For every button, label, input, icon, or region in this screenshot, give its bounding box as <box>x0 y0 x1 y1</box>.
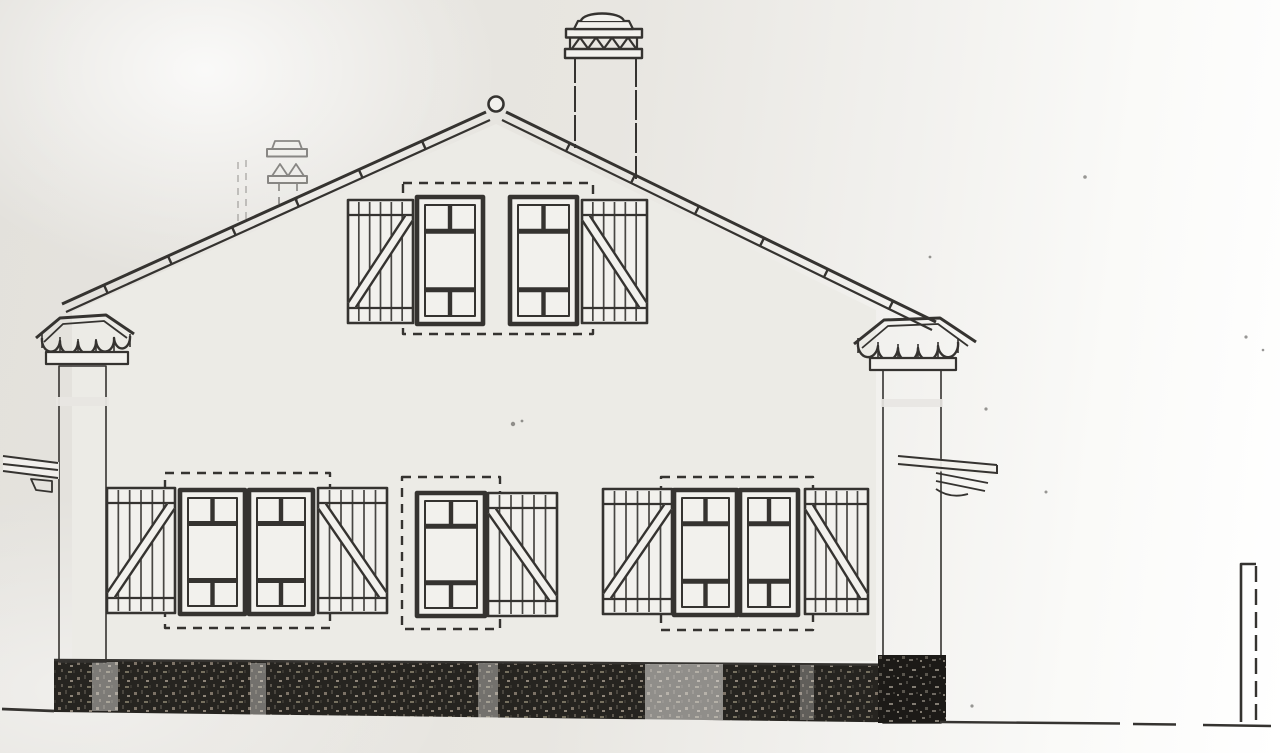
window-lower-middle <box>402 477 557 629</box>
window-leaf <box>510 197 577 324</box>
foundation <box>54 660 944 723</box>
shutter-right <box>582 200 647 323</box>
scanned-drawing-page <box>0 0 1280 753</box>
window-leaf <box>249 490 313 614</box>
secondary-chimney <box>238 141 307 224</box>
window-leaf <box>417 197 483 324</box>
shutter-right <box>318 488 387 613</box>
ridge-finial <box>489 97 504 112</box>
right-spout <box>898 455 997 496</box>
window-lower-right <box>603 477 868 630</box>
shutter-left <box>603 489 672 614</box>
shutter-left <box>107 488 175 613</box>
main-chimney <box>565 14 642 180</box>
fence-post <box>1241 564 1256 722</box>
window-leaf <box>674 490 737 615</box>
window-leaf <box>417 493 485 616</box>
left-beam <box>3 455 59 492</box>
shutter-left <box>348 200 413 323</box>
shutter-right <box>488 493 557 616</box>
window-leaf <box>740 490 798 615</box>
window-lower-left <box>107 473 387 628</box>
right-pier <box>878 368 946 723</box>
shutter-right <box>805 489 868 614</box>
window-leaf <box>180 490 245 614</box>
elevation-drawing <box>0 0 1280 753</box>
